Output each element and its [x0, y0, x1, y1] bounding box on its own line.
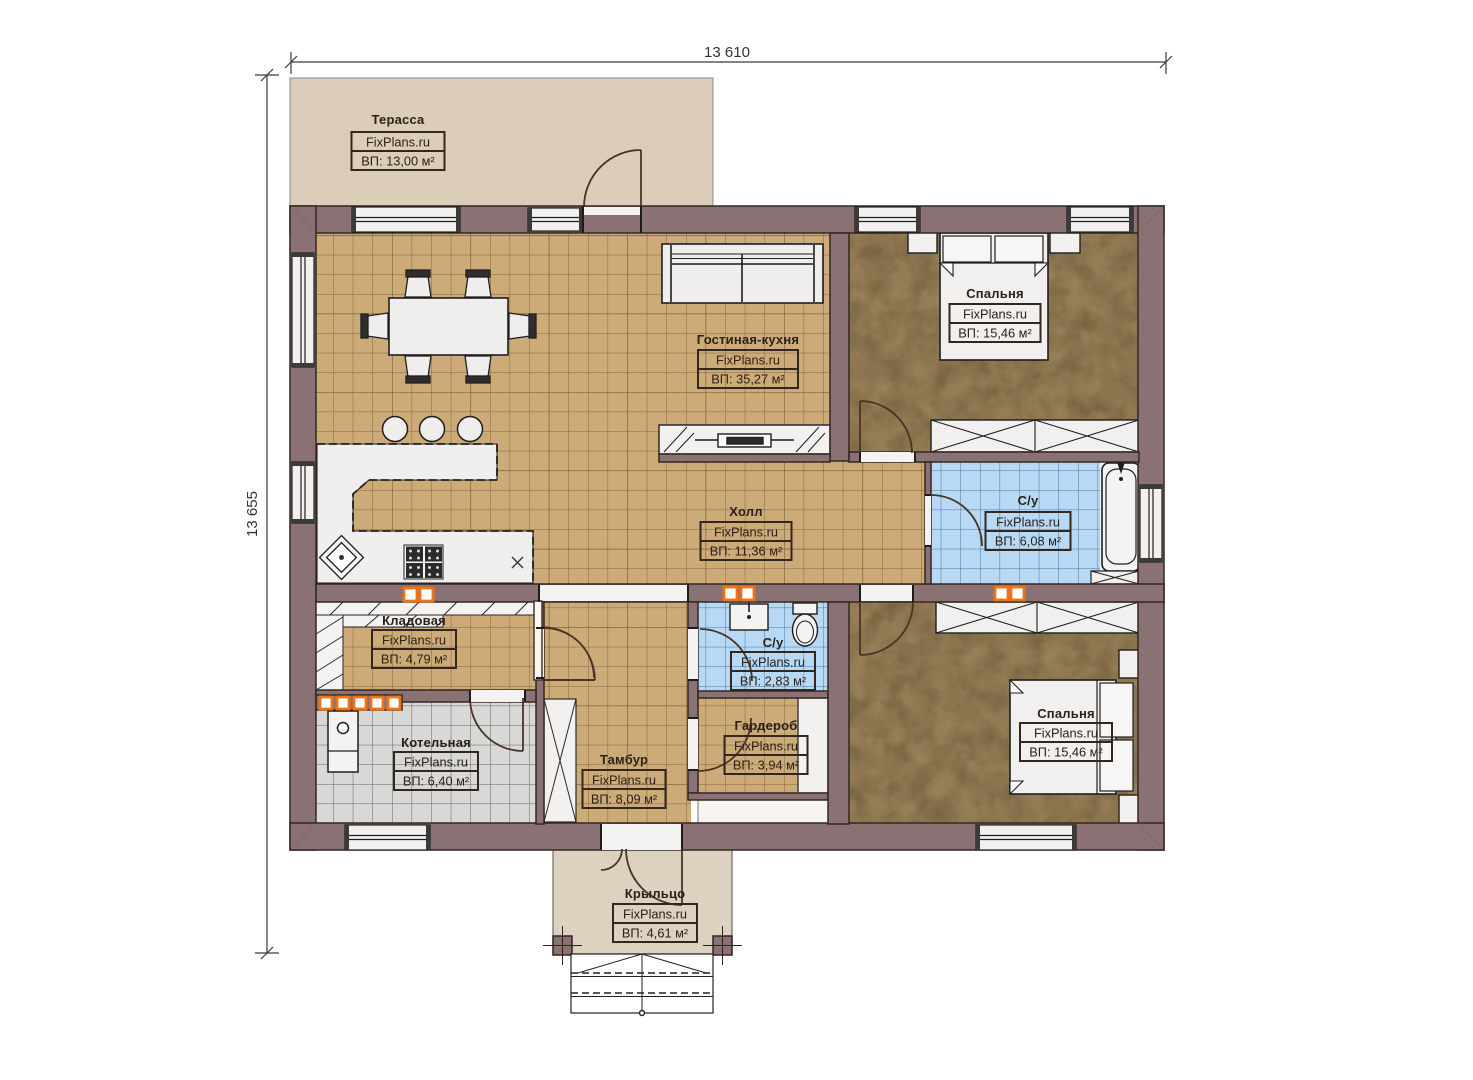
svg-text:FixPlans.ru: FixPlans.ru	[714, 525, 778, 540]
svg-text:С/у: С/у	[1018, 493, 1039, 508]
svg-text:ВП: 2,83 м²: ВП: 2,83 м²	[740, 674, 807, 689]
svg-text:FixPlans.ru: FixPlans.ru	[382, 633, 446, 648]
svg-text:FixPlans.ru: FixPlans.ru	[366, 135, 430, 150]
svg-text:ВП: 6,40 м²: ВП: 6,40 м²	[403, 774, 470, 789]
svg-text:FixPlans.ru: FixPlans.ru	[716, 353, 780, 368]
svg-text:ВП: 8,09 м²: ВП: 8,09 м²	[591, 792, 658, 807]
svg-text:FixPlans.ru: FixPlans.ru	[1034, 726, 1098, 741]
svg-text:ВП: 15,46 м²: ВП: 15,46 м²	[958, 326, 1032, 341]
svg-text:ВП: 4,61 м²: ВП: 4,61 м²	[622, 926, 689, 941]
svg-text:13 610: 13 610	[704, 44, 750, 61]
svg-text:FixPlans.ru: FixPlans.ru	[623, 907, 687, 922]
svg-text:Кладовая: Кладовая	[382, 613, 446, 628]
svg-text:13 655: 13 655	[244, 491, 261, 537]
svg-text:Гостиная-кухня: Гостиная-кухня	[697, 332, 799, 347]
svg-text:Терасса: Терасса	[372, 112, 426, 127]
svg-text:Холл: Холл	[729, 504, 762, 519]
svg-text:FixPlans.ru: FixPlans.ru	[996, 515, 1060, 530]
svg-text:FixPlans.ru: FixPlans.ru	[963, 307, 1027, 322]
svg-text:ВП: 15,46 м²: ВП: 15,46 м²	[1029, 745, 1103, 760]
svg-text:FixPlans.ru: FixPlans.ru	[592, 773, 656, 788]
svg-text:FixPlans.ru: FixPlans.ru	[734, 739, 798, 754]
svg-text:Гардероб: Гардероб	[734, 718, 797, 733]
svg-text:ВП: 35,27 м²: ВП: 35,27 м²	[711, 372, 785, 387]
svg-text:Спальня: Спальня	[1037, 706, 1095, 721]
svg-text:FixPlans.ru: FixPlans.ru	[404, 755, 468, 770]
svg-text:ВП: 11,36 м²: ВП: 11,36 м²	[710, 544, 783, 559]
svg-text:ВП: 13,00 м²: ВП: 13,00 м²	[361, 154, 435, 169]
svg-text:ВП: 4,79 м²: ВП: 4,79 м²	[381, 652, 448, 667]
svg-text:FixPlans.ru: FixPlans.ru	[741, 655, 805, 670]
svg-text:Котельная: Котельная	[401, 735, 471, 750]
svg-text:Тамбур: Тамбур	[600, 752, 648, 767]
svg-text:Спальня: Спальня	[966, 286, 1024, 301]
svg-text:ВП: 3,94 м²: ВП: 3,94 м²	[733, 758, 800, 773]
svg-text:ВП: 6,08 м²: ВП: 6,08 м²	[995, 534, 1062, 549]
svg-text:С/у: С/у	[763, 635, 784, 650]
svg-text:Крыльцо: Крыльцо	[625, 886, 686, 901]
